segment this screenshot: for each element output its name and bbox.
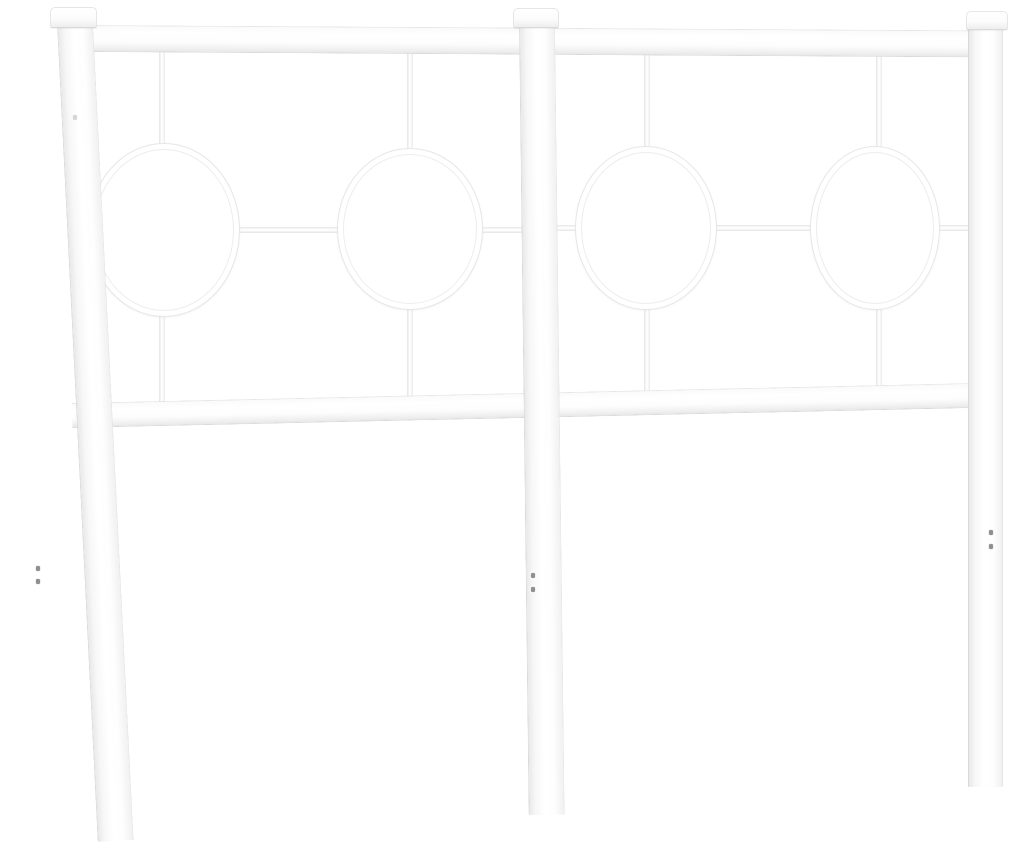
- left-post-finial-cap: [50, 7, 97, 28]
- spindle-above-circle-2: [407, 48, 413, 151]
- spindle-below-circle-4: [876, 308, 882, 388]
- screw-hole: [36, 566, 40, 571]
- left-post: [57, 23, 134, 842]
- screw-hole: [531, 573, 535, 578]
- center-post: [519, 24, 565, 815]
- circle-ornament-2: [337, 148, 483, 310]
- spindle-above-circle-4: [876, 50, 882, 150]
- circle-ornament-3: [575, 146, 717, 310]
- circle-ornament-1: [88, 143, 240, 317]
- spindle-below-circle-2: [407, 308, 413, 400]
- right-post-finial-cap: [966, 11, 1008, 30]
- screw-hole: [989, 544, 993, 549]
- screw-hole: [73, 115, 77, 120]
- spindle-above-circle-3: [644, 50, 650, 150]
- spindle-below-circle-3: [644, 308, 650, 394]
- circle-ornament-3-inner-edge: [581, 152, 711, 304]
- spindle-below-circle-1: [159, 310, 165, 405]
- circle-ornament-4-inner-edge: [816, 152, 934, 304]
- bottom-rail: [72, 383, 972, 428]
- circle-ornament-2-inner-edge: [343, 154, 477, 304]
- center-post-finial-cap: [513, 8, 559, 28]
- screw-hole: [531, 587, 535, 592]
- screw-hole: [36, 579, 40, 584]
- headboard-product-photo: [0, 0, 1013, 849]
- screw-hole: [989, 530, 993, 535]
- circle-ornament-4: [810, 146, 940, 310]
- spindle-above-circle-1: [159, 48, 165, 148]
- circle-ornament-1-inner-edge: [94, 149, 234, 311]
- right-post: [968, 26, 1003, 787]
